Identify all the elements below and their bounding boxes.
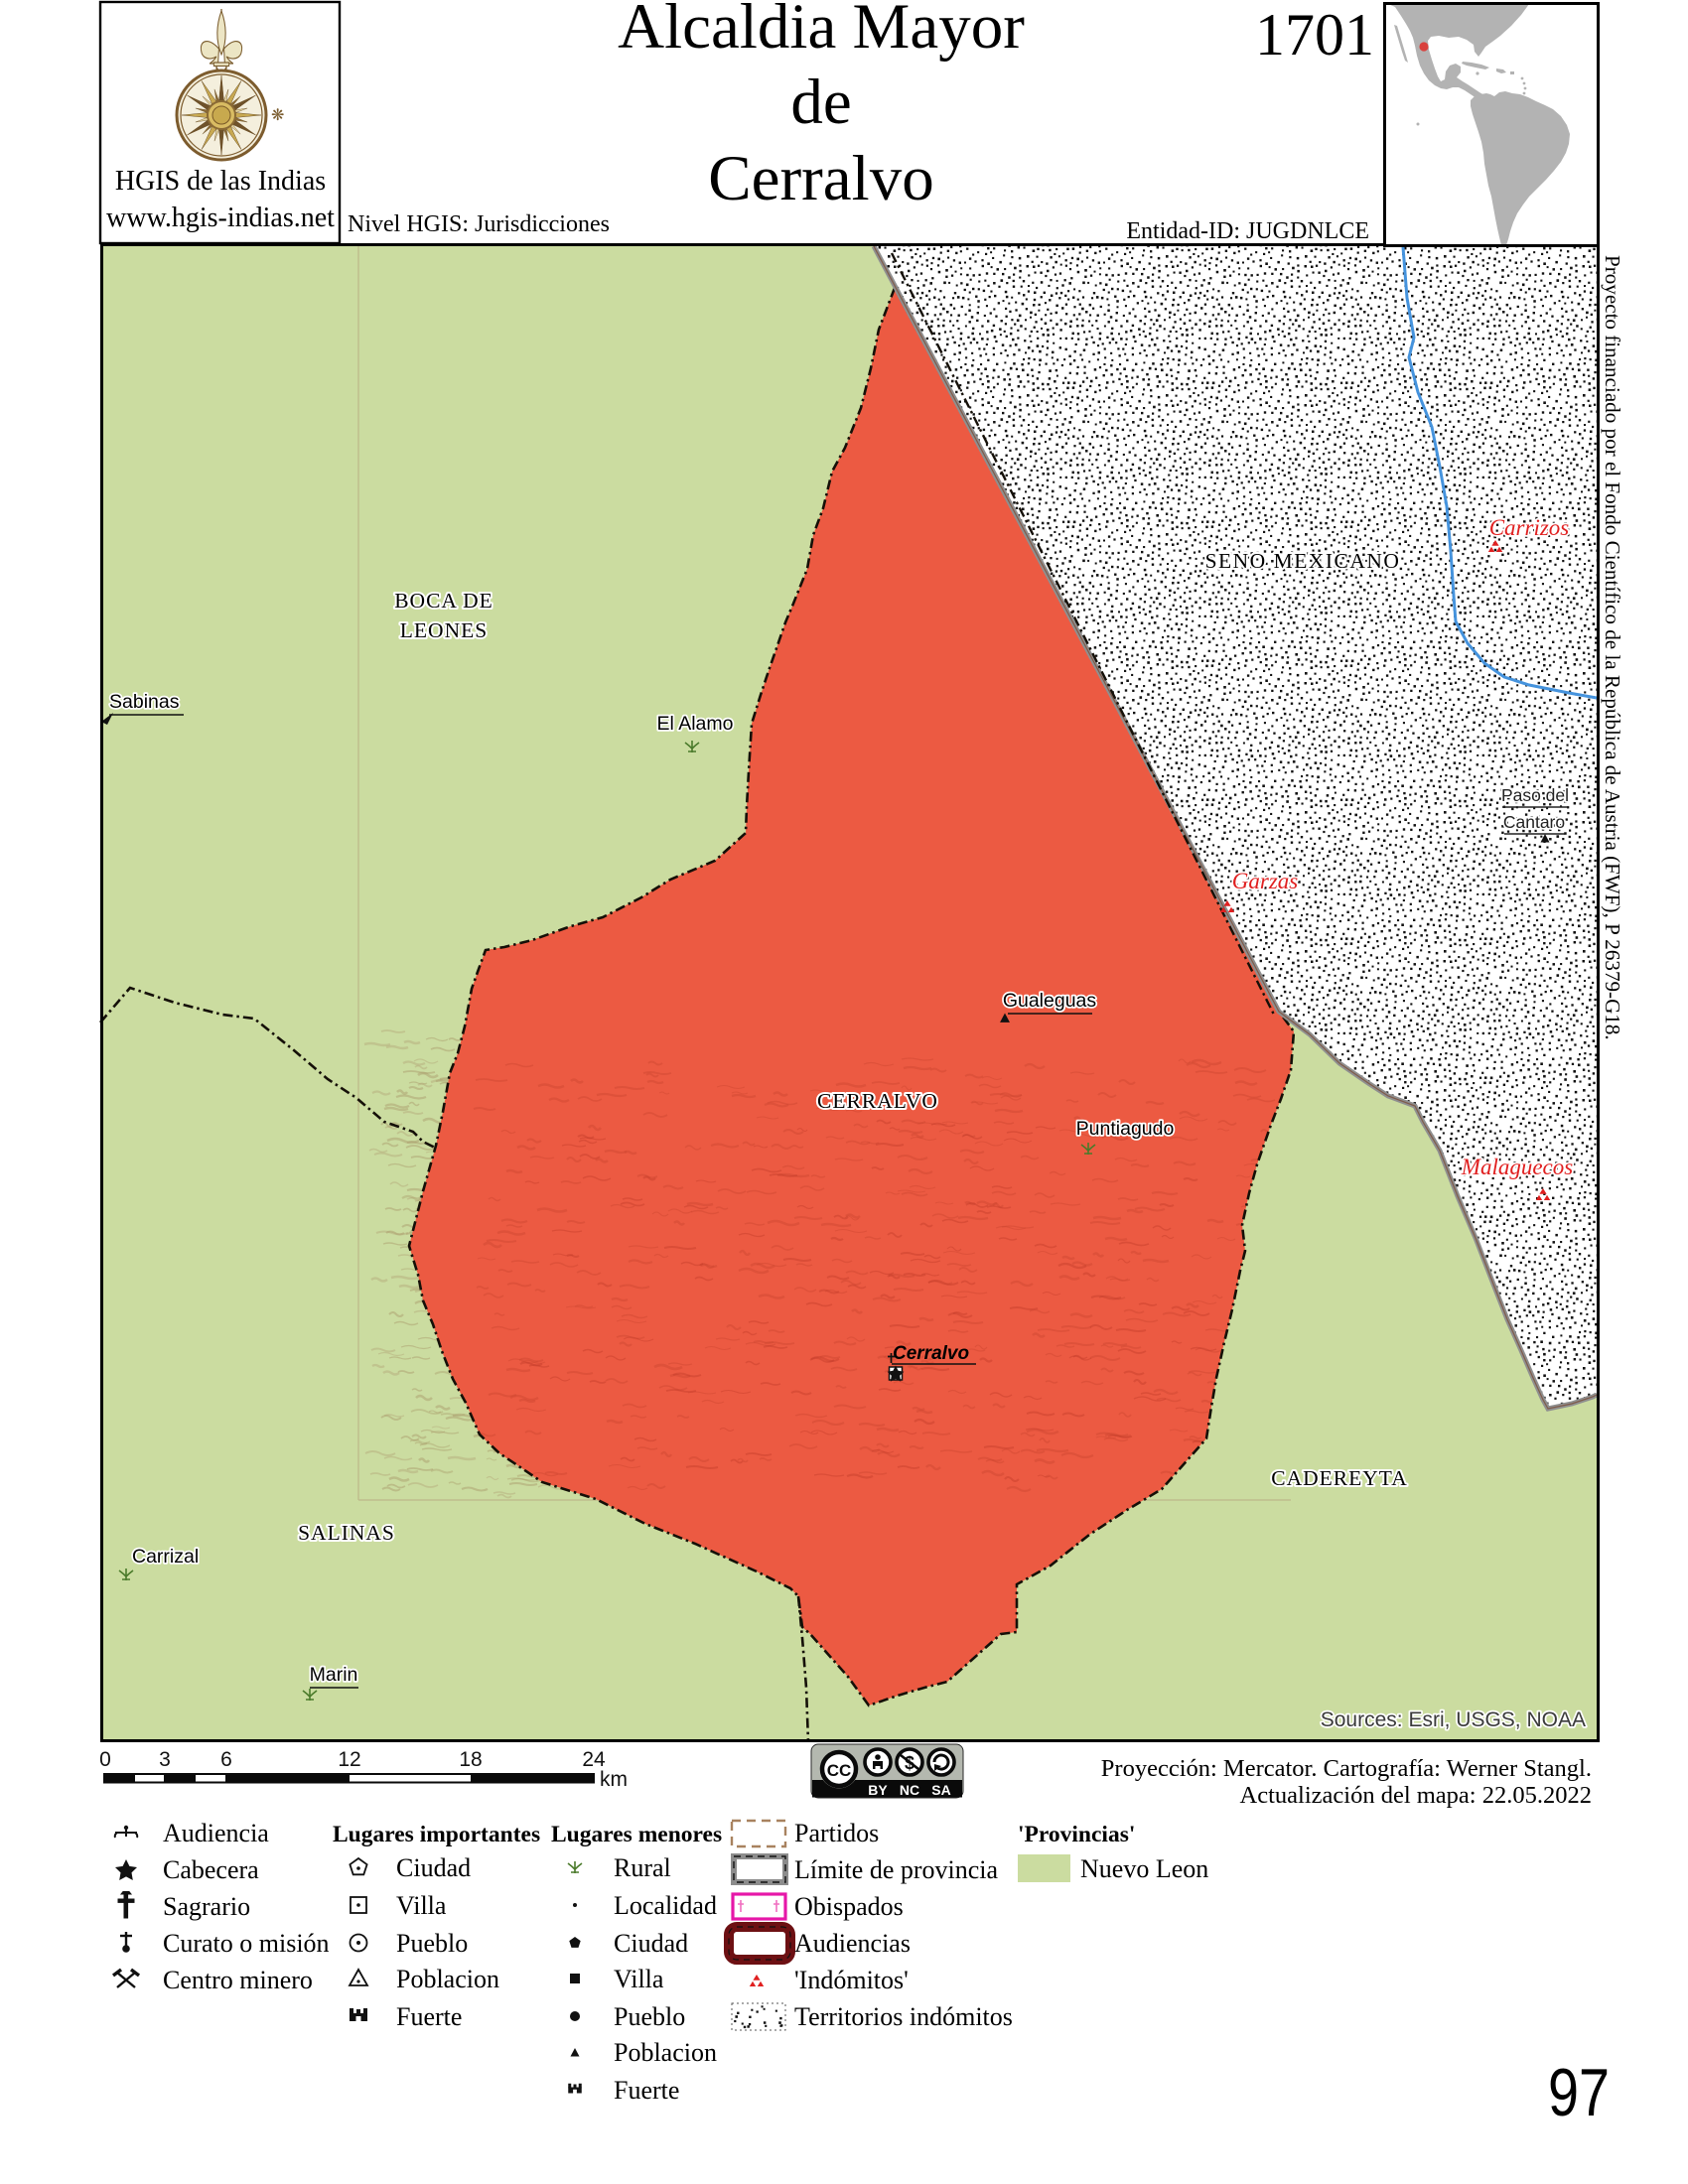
svg-text:SA: SA [931, 1782, 950, 1798]
svg-text:Poblacion: Poblacion [614, 2038, 717, 2067]
svg-text:18: 18 [459, 1748, 482, 1771]
svg-text:Malaguecos: Malaguecos [1461, 1155, 1573, 1179]
svg-text:Lugares importantes: Lugares importantes [333, 1822, 540, 1847]
svg-text:Territorios indómitos: Territorios indómitos [794, 2002, 1013, 2031]
svg-text:SALINAS: SALINAS [298, 1521, 395, 1545]
svg-text:Villa: Villa [614, 1965, 664, 1993]
svg-text:Marin: Marin [310, 1664, 358, 1686]
svg-text:Puntiagudo: Puntiagudo [1076, 1118, 1175, 1140]
svg-text:Gualeguas: Gualeguas [1003, 990, 1097, 1012]
svg-text:Cantaro: Cantaro [1503, 812, 1565, 832]
svg-text:Pueblo: Pueblo [614, 2002, 685, 2031]
svg-text:Garzas: Garzas [1232, 869, 1299, 893]
svg-text:Nivel HGIS: Jurisdicciones: Nivel HGIS: Jurisdicciones [348, 211, 610, 237]
svg-text:❋: ❋ [271, 107, 284, 124]
svg-text:Alcaldia Mayor: Alcaldia Mayor [618, 0, 1025, 63]
svg-text:km: km [600, 1768, 628, 1791]
svg-text:Actualización del mapa: 22.05.: Actualización del mapa: 22.05.2022 [1240, 1782, 1592, 1809]
svg-text:Cerralvo: Cerralvo [708, 143, 933, 214]
svg-text:CADEREYTA: CADEREYTA [1271, 1466, 1407, 1490]
svg-text:Entidad-ID: JUGDNLCE: Entidad-ID: JUGDNLCE [1126, 218, 1369, 244]
svg-text:Carrizos: Carrizos [1489, 515, 1570, 540]
svg-text:BOCA DE: BOCA DE [394, 589, 493, 613]
svg-text:Audiencia: Audiencia [163, 1819, 269, 1847]
svg-text:El Alamo: El Alamo [657, 713, 734, 735]
svg-text:Límite de provincia: Límite de provincia [794, 1855, 999, 1884]
svg-text:Curato o misión: Curato o misión [163, 1929, 330, 1958]
svg-text:Carrizal: Carrizal [132, 1546, 199, 1568]
svg-text:Fuerte: Fuerte [396, 2002, 462, 2031]
svg-text:Pueblo: Pueblo [396, 1929, 468, 1958]
svg-text:Ciudad: Ciudad [614, 1929, 688, 1958]
svg-text:Sources: Esri, USGS, NOAA: Sources: Esri, USGS, NOAA [1321, 1708, 1586, 1731]
svg-text:Rural: Rural [614, 1853, 671, 1882]
svg-text:SENO MEXICANO: SENO MEXICANO [1205, 549, 1401, 573]
svg-text:Poblacion: Poblacion [396, 1965, 499, 1993]
svg-text:Paso del: Paso del [1501, 785, 1569, 805]
svg-text:3: 3 [159, 1748, 171, 1771]
svg-text:Sabinas: Sabinas [109, 691, 180, 713]
svg-text:NC: NC [900, 1782, 919, 1798]
svg-text:Centro minero: Centro minero [163, 1966, 313, 1994]
svg-text:Obispados: Obispados [794, 1892, 904, 1921]
svg-text:97: 97 [1548, 2055, 1610, 2130]
svg-text:'Provincias': 'Provincias' [1018, 1822, 1135, 1847]
svg-text:Sagrario: Sagrario [163, 1892, 250, 1921]
svg-text:www.hgis-indias.net: www.hgis-indias.net [106, 203, 335, 233]
svg-text:Proyecto financiado por el Fon: Proyecto financiado por el Fondo Científ… [1601, 255, 1624, 1040]
svg-text:Localidad: Localidad [614, 1891, 717, 1920]
svg-text:Villa: Villa [396, 1891, 447, 1920]
svg-text:CERRALVO: CERRALVO [817, 1089, 938, 1113]
svg-text:Proyección: Mercator. Cartogra: Proyección: Mercator. Cartografía: Werne… [1101, 1755, 1592, 1782]
svg-text:12: 12 [338, 1748, 360, 1771]
svg-text:Partidos: Partidos [794, 1819, 879, 1847]
svg-text:0: 0 [99, 1748, 111, 1771]
svg-text:Ciudad: Ciudad [396, 1853, 471, 1882]
svg-text:Audiencias: Audiencias [794, 1929, 911, 1958]
svg-text:BY: BY [868, 1782, 888, 1798]
svg-text:Cerralvo: Cerralvo [893, 1343, 969, 1364]
svg-text:HGIS de las Indias: HGIS de las Indias [115, 166, 326, 197]
svg-text:LEONES: LEONES [400, 618, 488, 642]
svg-text:1701: 1701 [1255, 2, 1374, 68]
svg-text:'Indómitos': 'Indómitos' [794, 1966, 909, 1994]
svg-text:6: 6 [220, 1748, 232, 1771]
svg-text:CC: CC [827, 1761, 852, 1780]
svg-text:Cabecera: Cabecera [163, 1855, 259, 1884]
svg-text:Lugares menores: Lugares menores [551, 1822, 722, 1847]
svg-text:Fuerte: Fuerte [614, 2076, 679, 2105]
svg-text:de: de [790, 67, 851, 138]
svg-text:Nuevo Leon: Nuevo Leon [1080, 1854, 1208, 1883]
